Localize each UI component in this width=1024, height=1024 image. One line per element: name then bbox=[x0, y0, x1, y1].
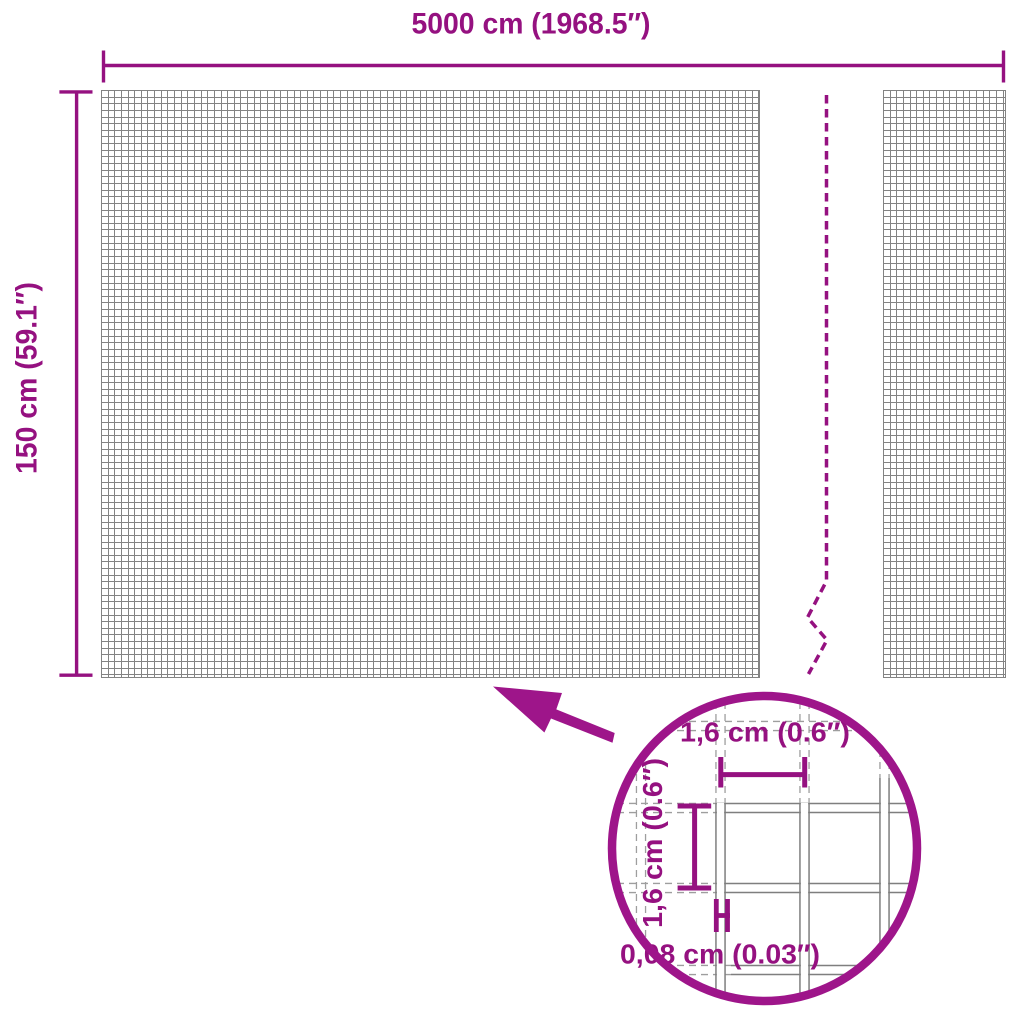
svg-text:1,6 cm (0.6″): 1,6 cm (0.6″) bbox=[637, 758, 668, 928]
svg-text:1,6 cm (0.6″): 1,6 cm (0.6″) bbox=[680, 717, 850, 748]
svg-text:5000 cm (1968.5″): 5000 cm (1968.5″) bbox=[412, 8, 651, 41]
svg-text:150 cm (59.1″): 150 cm (59.1″) bbox=[11, 282, 44, 474]
